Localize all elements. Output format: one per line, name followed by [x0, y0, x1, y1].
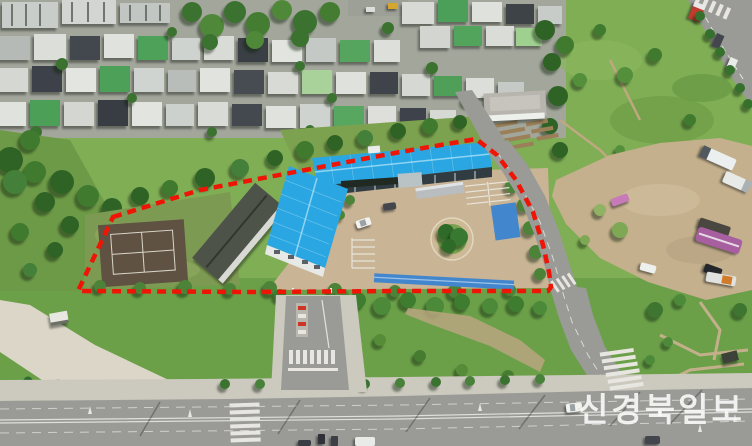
townhouse-green-roof — [340, 40, 370, 62]
aerial-photo: 신경북일보 — [0, 0, 752, 446]
townhouse — [66, 68, 96, 92]
townhouse — [336, 72, 366, 94]
townhouse — [198, 102, 228, 126]
townhouse — [172, 38, 200, 60]
excavator — [388, 3, 398, 9]
construction-yard — [348, 0, 408, 16]
townhouse-green-roof — [30, 100, 60, 126]
townhouse — [420, 26, 450, 48]
townhouse — [132, 102, 162, 126]
townhouse-green-roof — [302, 70, 332, 94]
apartment-slab — [2, 2, 58, 28]
car-on-main-road — [645, 436, 660, 444]
townhouse-green-roof — [138, 36, 168, 60]
townhouse-dark-roof — [234, 70, 264, 94]
townhouse-dark-roof — [32, 66, 62, 92]
median-island — [296, 303, 308, 337]
rooftop-unit — [368, 145, 381, 153]
stop-line — [288, 368, 338, 371]
townhouse-green-roof — [454, 26, 482, 46]
circular-garden — [431, 218, 473, 260]
townhouse — [306, 38, 336, 62]
townhouse-dark-roof — [506, 4, 534, 24]
car-on-main-road — [298, 440, 311, 446]
townhouse — [402, 74, 430, 96]
entrance-road — [281, 296, 349, 390]
townhouse — [200, 68, 230, 92]
townhouse — [374, 40, 400, 62]
townhouse — [486, 26, 514, 46]
townhouse — [266, 106, 296, 128]
townhouse — [34, 34, 66, 60]
townhouse — [168, 70, 196, 92]
townhouse — [472, 2, 502, 22]
walkway-canopy-east — [491, 202, 521, 240]
townhouse-dark-roof — [370, 72, 398, 94]
white-hip-roof-building — [483, 90, 546, 121]
townhouse — [166, 104, 194, 126]
tennis-court — [98, 219, 188, 287]
townhouse-dark-roof — [98, 100, 128, 126]
townhouse — [0, 36, 30, 60]
townhouse — [268, 72, 298, 94]
entrance-porch — [398, 172, 423, 188]
townhouse — [64, 102, 94, 126]
townhouse — [134, 68, 164, 92]
waiting-car — [318, 434, 325, 444]
van — [366, 7, 375, 12]
townhouse — [104, 34, 134, 58]
watermark-text: 신경북일보 — [578, 390, 745, 429]
townhouse — [0, 68, 28, 92]
townhouse — [402, 2, 434, 24]
townhouse — [0, 102, 26, 126]
waiting-car — [331, 436, 338, 446]
townhouse-green-roof — [438, 0, 468, 22]
townhouse-dark-roof — [232, 104, 262, 126]
truck-on-main-road — [355, 437, 375, 446]
townhouse-solar-roof — [70, 36, 100, 60]
townhouse — [300, 104, 330, 128]
townhouse-green-roof — [100, 66, 130, 92]
